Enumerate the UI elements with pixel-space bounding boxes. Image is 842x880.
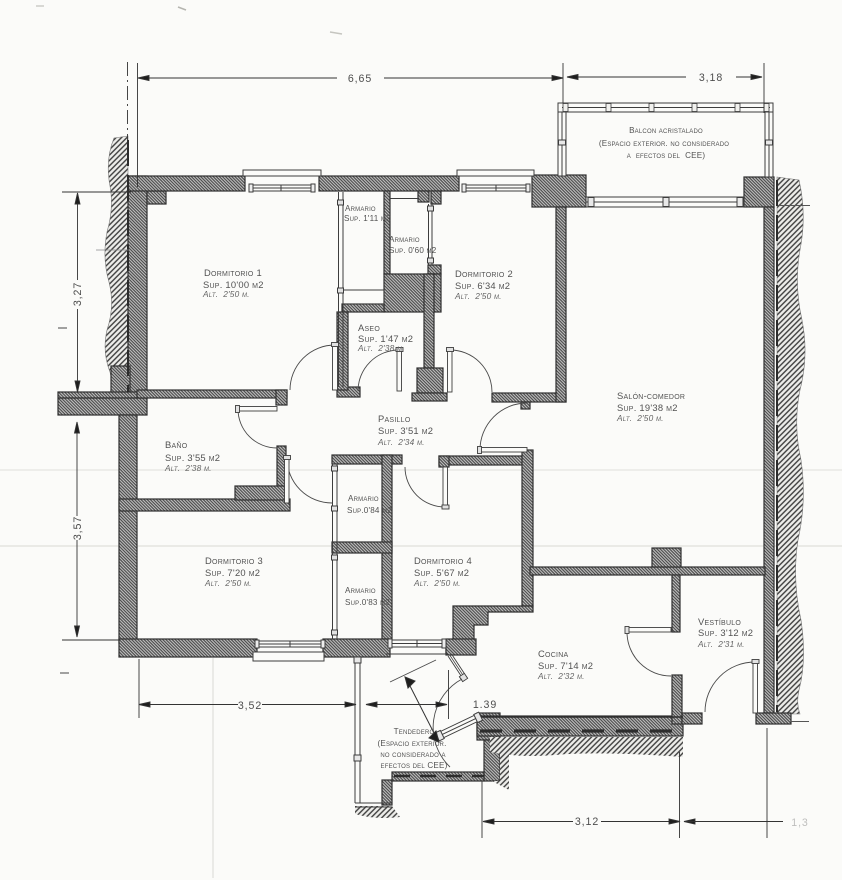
svg-text:Armario: Armario	[389, 235, 420, 244]
svg-text:1,3: 1,3	[791, 817, 808, 829]
svg-text:3,52: 3,52	[238, 700, 262, 712]
svg-text:Sup. 7'14 m2: Sup. 7'14 m2	[538, 660, 593, 671]
svg-text:Baño: Baño	[165, 439, 188, 450]
svg-text:Alt. 2'50 m.: Alt. 2'50 m.	[202, 289, 250, 299]
svg-text:3,57: 3,57	[72, 516, 84, 540]
svg-text:Alt. 2'50 m.: Alt. 2'50 m.	[204, 578, 252, 588]
svg-text:Alt. 2'50 m.: Alt. 2'50 m.	[616, 413, 664, 423]
svg-text:Alt. 2'31 m.: Alt. 2'31 m.	[697, 639, 745, 649]
svg-text:Dormitorio 3: Dormitorio 3	[205, 555, 263, 566]
svg-text:(Espacio exterior. no consider: (Espacio exterior. no considerado	[599, 139, 729, 148]
svg-text:Sup. 3'51 m2: Sup. 3'51 m2	[378, 425, 433, 436]
svg-text:Sup.0'83 m2: Sup.0'83 m2	[345, 598, 390, 607]
svg-text:no considerado a: no considerado a	[380, 750, 445, 759]
svg-text:3,12: 3,12	[575, 816, 599, 828]
svg-text:Vestíbulo: Vestíbulo	[698, 616, 741, 627]
svg-text:Sup. 5'67 m2: Sup. 5'67 m2	[414, 567, 469, 578]
svg-text:Alt. 2'50 m.: Alt. 2'50 m.	[413, 578, 461, 588]
svg-text:Alt. 2'50 m.: Alt. 2'50 m.	[454, 291, 502, 301]
svg-text:Sup. 6'34 m2: Sup. 6'34 m2	[455, 280, 510, 291]
svg-text:Alt. 2'32 m.: Alt. 2'32 m.	[537, 671, 585, 681]
svg-text:Alt. 2'38 m.: Alt. 2'38 m.	[357, 343, 405, 353]
svg-text:Sup. 19'38 m2: Sup. 19'38 m2	[617, 402, 678, 413]
svg-text:Dormitorio 1: Dormitorio 1	[204, 267, 262, 278]
svg-text:Armario: Armario	[345, 586, 376, 595]
svg-text:Dormitorio 2: Dormitorio 2	[455, 268, 513, 279]
svg-text:3,18: 3,18	[699, 72, 723, 84]
svg-text:Alt. 2'38 m.: Alt. 2'38 m.	[164, 463, 212, 473]
svg-text:Sup. 0'60 m2: Sup. 0'60 m2	[389, 246, 437, 255]
svg-text:(Espacio exterior.: (Espacio exterior.	[377, 739, 446, 748]
svg-text:Balcon acristalado: Balcon acristalado	[629, 126, 703, 135]
svg-text:Alt. 2'34 m.: Alt. 2'34 m.	[377, 437, 425, 447]
svg-text:1.39: 1.39	[473, 699, 497, 711]
svg-text:Armario: Armario	[345, 204, 376, 213]
svg-text:3,27: 3,27	[72, 282, 84, 306]
svg-text:Sup.0'84 m2: Sup.0'84 m2	[347, 506, 392, 515]
svg-text:Pasillo: Pasillo	[378, 413, 411, 424]
svg-text:Armario: Armario	[348, 494, 379, 503]
svg-text:Cocina: Cocina	[538, 648, 569, 659]
svg-text:6,65: 6,65	[348, 73, 372, 85]
svg-text:Aseo: Aseo	[358, 322, 380, 333]
svg-text:Tendedero: Tendedero	[394, 727, 435, 736]
svg-text:a efectos del CEE): a efectos del CEE)	[627, 151, 706, 160]
svg-text:efectos del CEE): efectos del CEE)	[381, 761, 448, 770]
svg-text:Salón-comedor: Salón-comedor	[617, 390, 685, 401]
svg-text:Sup. 7'20 m2: Sup. 7'20 m2	[205, 567, 260, 578]
svg-text:Sup. 3'12 m2: Sup. 3'12 m2	[698, 627, 753, 638]
svg-text:Sup. 1'11 m2: Sup. 1'11 m2	[344, 214, 391, 223]
svg-text:Sup. 3'55 m2: Sup. 3'55 m2	[165, 452, 220, 463]
svg-text:Dormitorio 4: Dormitorio 4	[414, 555, 472, 566]
